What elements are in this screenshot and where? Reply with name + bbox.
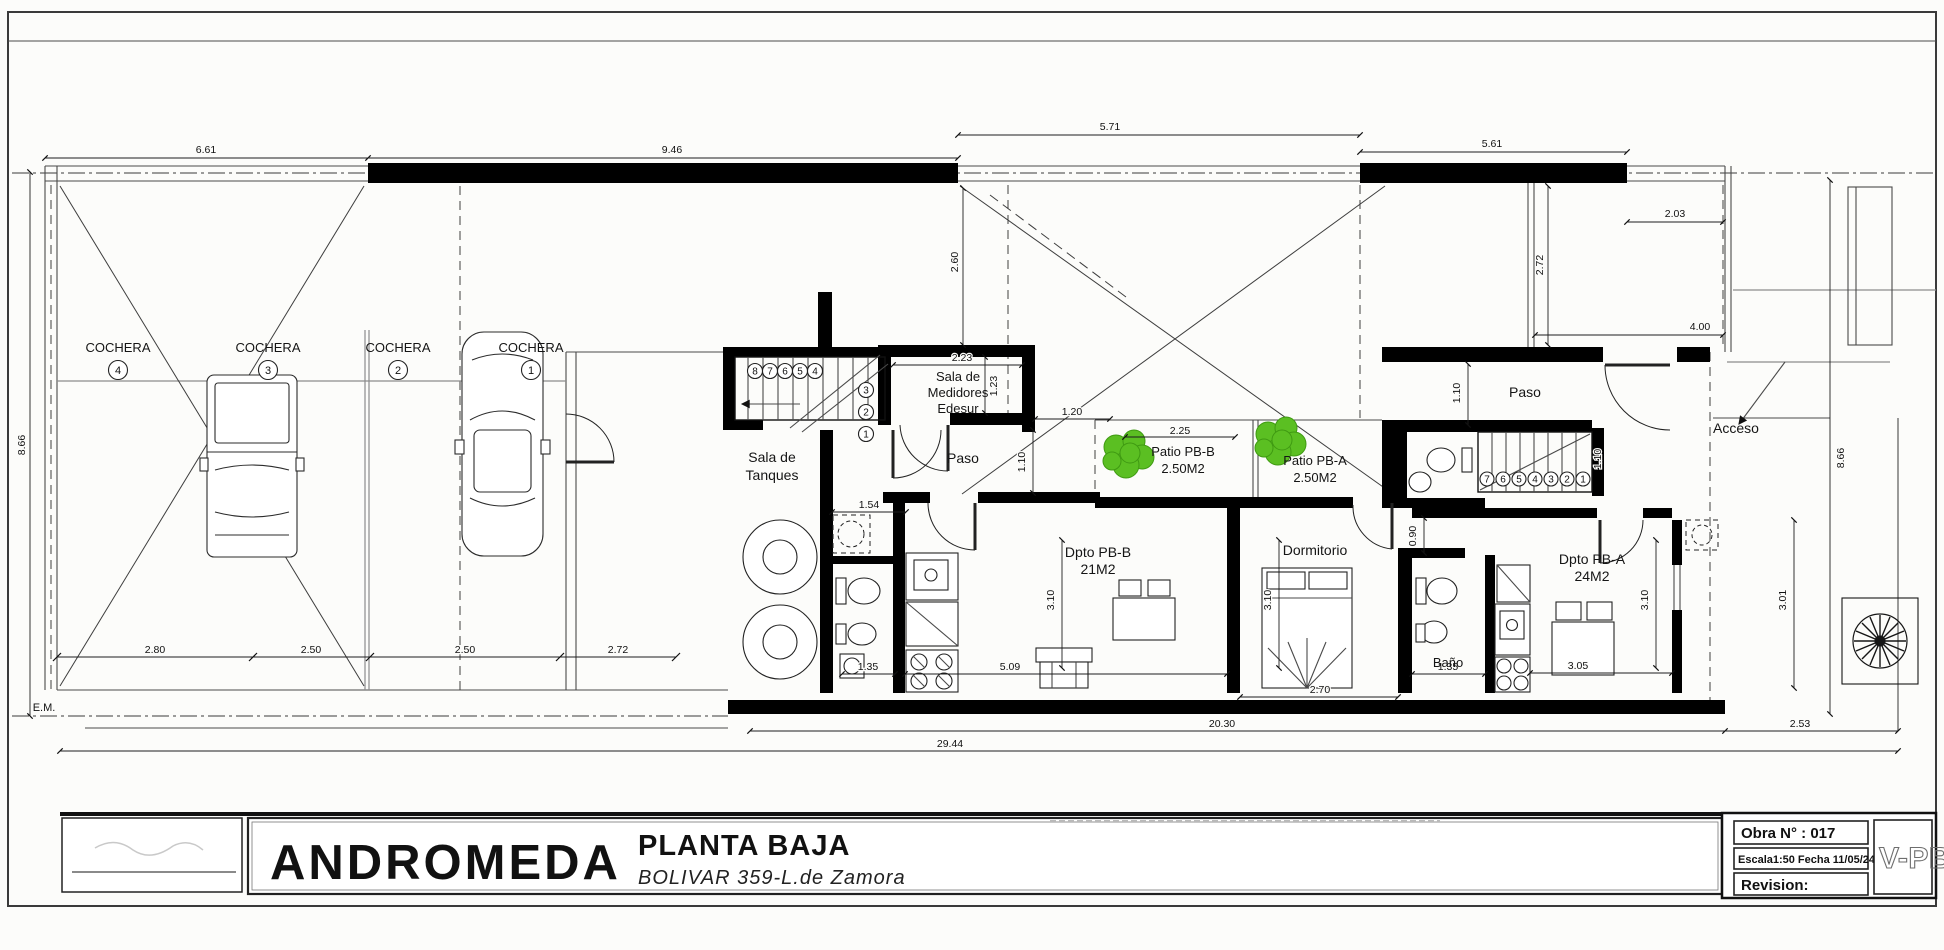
dim-label: 1.35 <box>858 661 879 673</box>
cochera-label: COCHERA <box>235 340 300 355</box>
medidores-label: Sala de <box>936 369 980 384</box>
dim-label: 2.25 <box>1170 425 1191 437</box>
dim-label: 8.66 <box>1835 448 1847 469</box>
step-number: 3 <box>863 386 869 397</box>
step-number: 3 <box>1548 475 1554 486</box>
paso-left-label: Paso <box>947 450 979 466</box>
stair-step-numbers-right: 7 6 5 4 3 2 1 <box>1480 472 1590 486</box>
dim-label: 1.10 <box>1451 383 1463 404</box>
cochera-number: 3 <box>265 365 271 377</box>
bano-label: Baño <box>1433 655 1463 670</box>
acceso-arrow <box>1739 362 1785 424</box>
dim-label: 1.20 <box>1062 406 1083 418</box>
medidores-label2: Medidores <box>928 385 989 400</box>
dim-label: 1.10 <box>1016 452 1028 473</box>
dim-label: 2.70 <box>1310 684 1331 696</box>
patio-pba-label: Patio PB-A <box>1283 453 1347 468</box>
title-block: ANDROMEDA PLANTA BAJA BOLIVAR 359-L.de Z… <box>60 812 1944 898</box>
dim-label: 4.00 <box>1690 321 1711 333</box>
dim-label: 5.71 <box>1100 121 1121 133</box>
step-number: 1 <box>863 430 869 441</box>
obra-number: Obra N° : 017 <box>1741 825 1835 842</box>
sheet-code: V-PB <box>1879 842 1944 875</box>
medidores-label3: Edesur <box>937 401 979 416</box>
property-axis-label: E.M. <box>33 702 56 714</box>
dim-label: 3.05 <box>1568 660 1589 672</box>
revision-label: Revision: <box>1741 877 1809 894</box>
cochera-4-label: COCHERA 4 <box>85 340 150 380</box>
sala-tanques-label: Sala de <box>748 449 796 465</box>
dim-label: 2.60 <box>949 252 961 273</box>
water-tanks <box>743 520 817 679</box>
drawing-title: PLANTA BAJA <box>638 830 850 862</box>
dim-label: 1.10 <box>1592 449 1604 470</box>
scale-date: Escala1:50 Fecha 11/05/24 <box>1738 854 1876 866</box>
cochera-3-label: COCHERA 3 <box>235 340 300 380</box>
dim-label: 2.50 <box>301 644 322 656</box>
step-number: 6 <box>782 367 788 378</box>
kitchen-pba <box>1495 565 1530 692</box>
step-number: 4 <box>812 367 818 378</box>
dim-label: 5.09 <box>1000 661 1021 673</box>
cochera-number: 4 <box>115 365 121 377</box>
dpto-pbb-label: Dpto PB-B <box>1065 544 1131 560</box>
cochera-number: 2 <box>395 365 401 377</box>
dim-label: 2.03 <box>1665 208 1686 220</box>
dim-label: 3.10 <box>1262 590 1274 611</box>
bathroom-top-fixtures <box>1409 448 1472 492</box>
step-number: 4 <box>1532 475 1538 486</box>
dim-label: 8.66 <box>16 435 28 456</box>
dim-label: 29.44 <box>937 738 963 750</box>
floor-plan-sheet: 8 7 6 5 4 3 2 1 7 6 5 4 3 2 1 <box>0 0 1944 950</box>
step-number: 7 <box>767 367 773 378</box>
dim-label: 6.61 <box>196 144 217 156</box>
dashed-fixture-circle <box>1692 525 1712 545</box>
step-number: 2 <box>1564 475 1570 486</box>
patio-pbb-label: Patio PB-B <box>1151 444 1215 459</box>
paso-right-label: Paso <box>1509 384 1541 400</box>
cochera-2-label: COCHERA 2 <box>365 340 430 380</box>
patio-pba-area: 2.50M2 <box>1293 470 1336 485</box>
vehicle-pickup <box>200 375 304 557</box>
step-number: 8 <box>752 367 758 378</box>
dim-label: 2.72 <box>608 644 629 656</box>
dim-label: 3.10 <box>1639 590 1651 611</box>
kitchen-pbb <box>906 553 958 692</box>
dim-label: 9.46 <box>662 144 683 156</box>
acceso-label: Acceso <box>1713 420 1759 436</box>
dormitorio-label: Dormitorio <box>1283 542 1348 558</box>
step-number: 5 <box>797 367 803 378</box>
project-title: ANDROMEDA <box>270 836 621 890</box>
dim-label: 2.80 <box>145 644 166 656</box>
dim-label: 3.01 <box>1777 590 1789 611</box>
dim-label: 2.23 <box>952 352 973 364</box>
bathroom-central-fixtures <box>1416 578 1457 643</box>
dim-label: 2.53 <box>1790 718 1811 730</box>
step-number: 5 <box>1516 475 1522 486</box>
sala-tanques-label2: Tanques <box>746 467 799 483</box>
street-tree <box>1842 598 1918 684</box>
dim-label: 1.54 <box>859 499 880 511</box>
step-number: 7 <box>1484 475 1490 486</box>
cochera-label: COCHERA <box>85 340 150 355</box>
dim-label: 0.90 <box>1407 526 1419 547</box>
cochera-label: COCHERA <box>498 340 563 355</box>
dim-label: 2.50 <box>455 644 476 656</box>
dpto-pba-area: 24M2 <box>1574 568 1609 584</box>
laundry-dashed <box>833 515 870 553</box>
bed <box>1262 568 1352 688</box>
patio-pbb-area: 2.50M2 <box>1161 461 1204 476</box>
step-number: 2 <box>863 408 869 419</box>
thin-walls <box>45 166 1936 731</box>
right-staircase: 7 6 5 4 3 2 1 <box>1478 432 1592 492</box>
dim-label: 1.23 <box>988 376 1000 397</box>
step-number: 6 <box>1500 475 1506 486</box>
floor-plan-drawing: 8 7 6 5 4 3 2 1 7 6 5 4 3 2 1 <box>0 0 1944 950</box>
step-number: 1 <box>1580 475 1586 486</box>
dim-label: 3.10 <box>1045 590 1057 611</box>
dim-label: 2.72 <box>1534 255 1546 276</box>
dpto-pbb-area: 21M2 <box>1080 561 1115 577</box>
dpto-pba-label: Dpto PB-A <box>1559 551 1626 567</box>
address-line: BOLIVAR 359-L.de Zamora <box>638 867 906 889</box>
cochera-number: 1 <box>528 365 534 377</box>
dim-label: 20.30 <box>1209 718 1235 730</box>
cochera-label: COCHERA <box>365 340 430 355</box>
dim-label: 5.61 <box>1482 138 1503 150</box>
